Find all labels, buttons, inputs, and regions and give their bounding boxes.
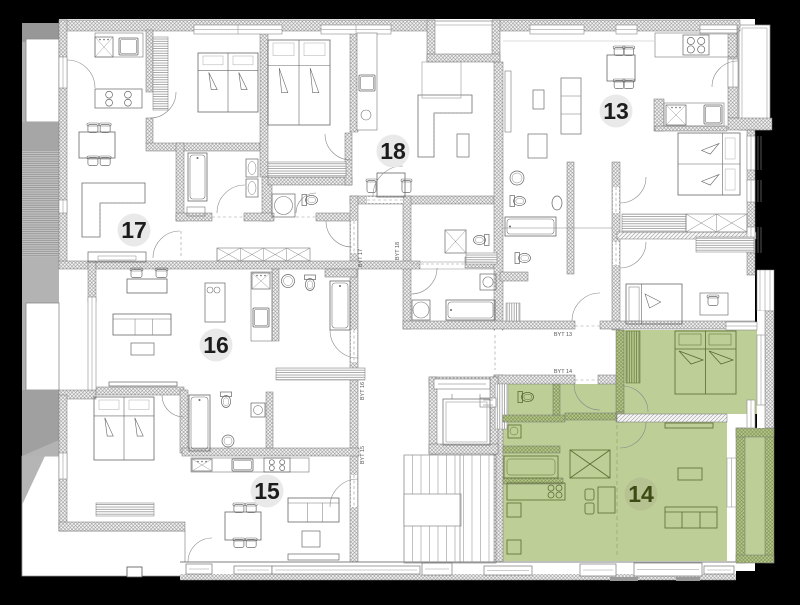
svg-text:BYT 18: BYT 18 — [395, 242, 401, 260]
svg-text:17: 17 — [121, 217, 147, 243]
svg-text:14: 14 — [628, 481, 654, 507]
svg-text:BYT 14: BYT 14 — [554, 369, 572, 375]
svg-text:BYT 17: BYT 17 — [358, 249, 364, 267]
svg-text:BYT 13: BYT 13 — [554, 332, 572, 338]
svg-text:15: 15 — [254, 478, 280, 504]
svg-text:18: 18 — [380, 138, 406, 164]
svg-text:BYT 16: BYT 16 — [360, 382, 366, 400]
svg-text:13: 13 — [603, 98, 629, 124]
svg-text:BYT 15: BYT 15 — [360, 446, 366, 464]
svg-text:16: 16 — [203, 332, 229, 358]
